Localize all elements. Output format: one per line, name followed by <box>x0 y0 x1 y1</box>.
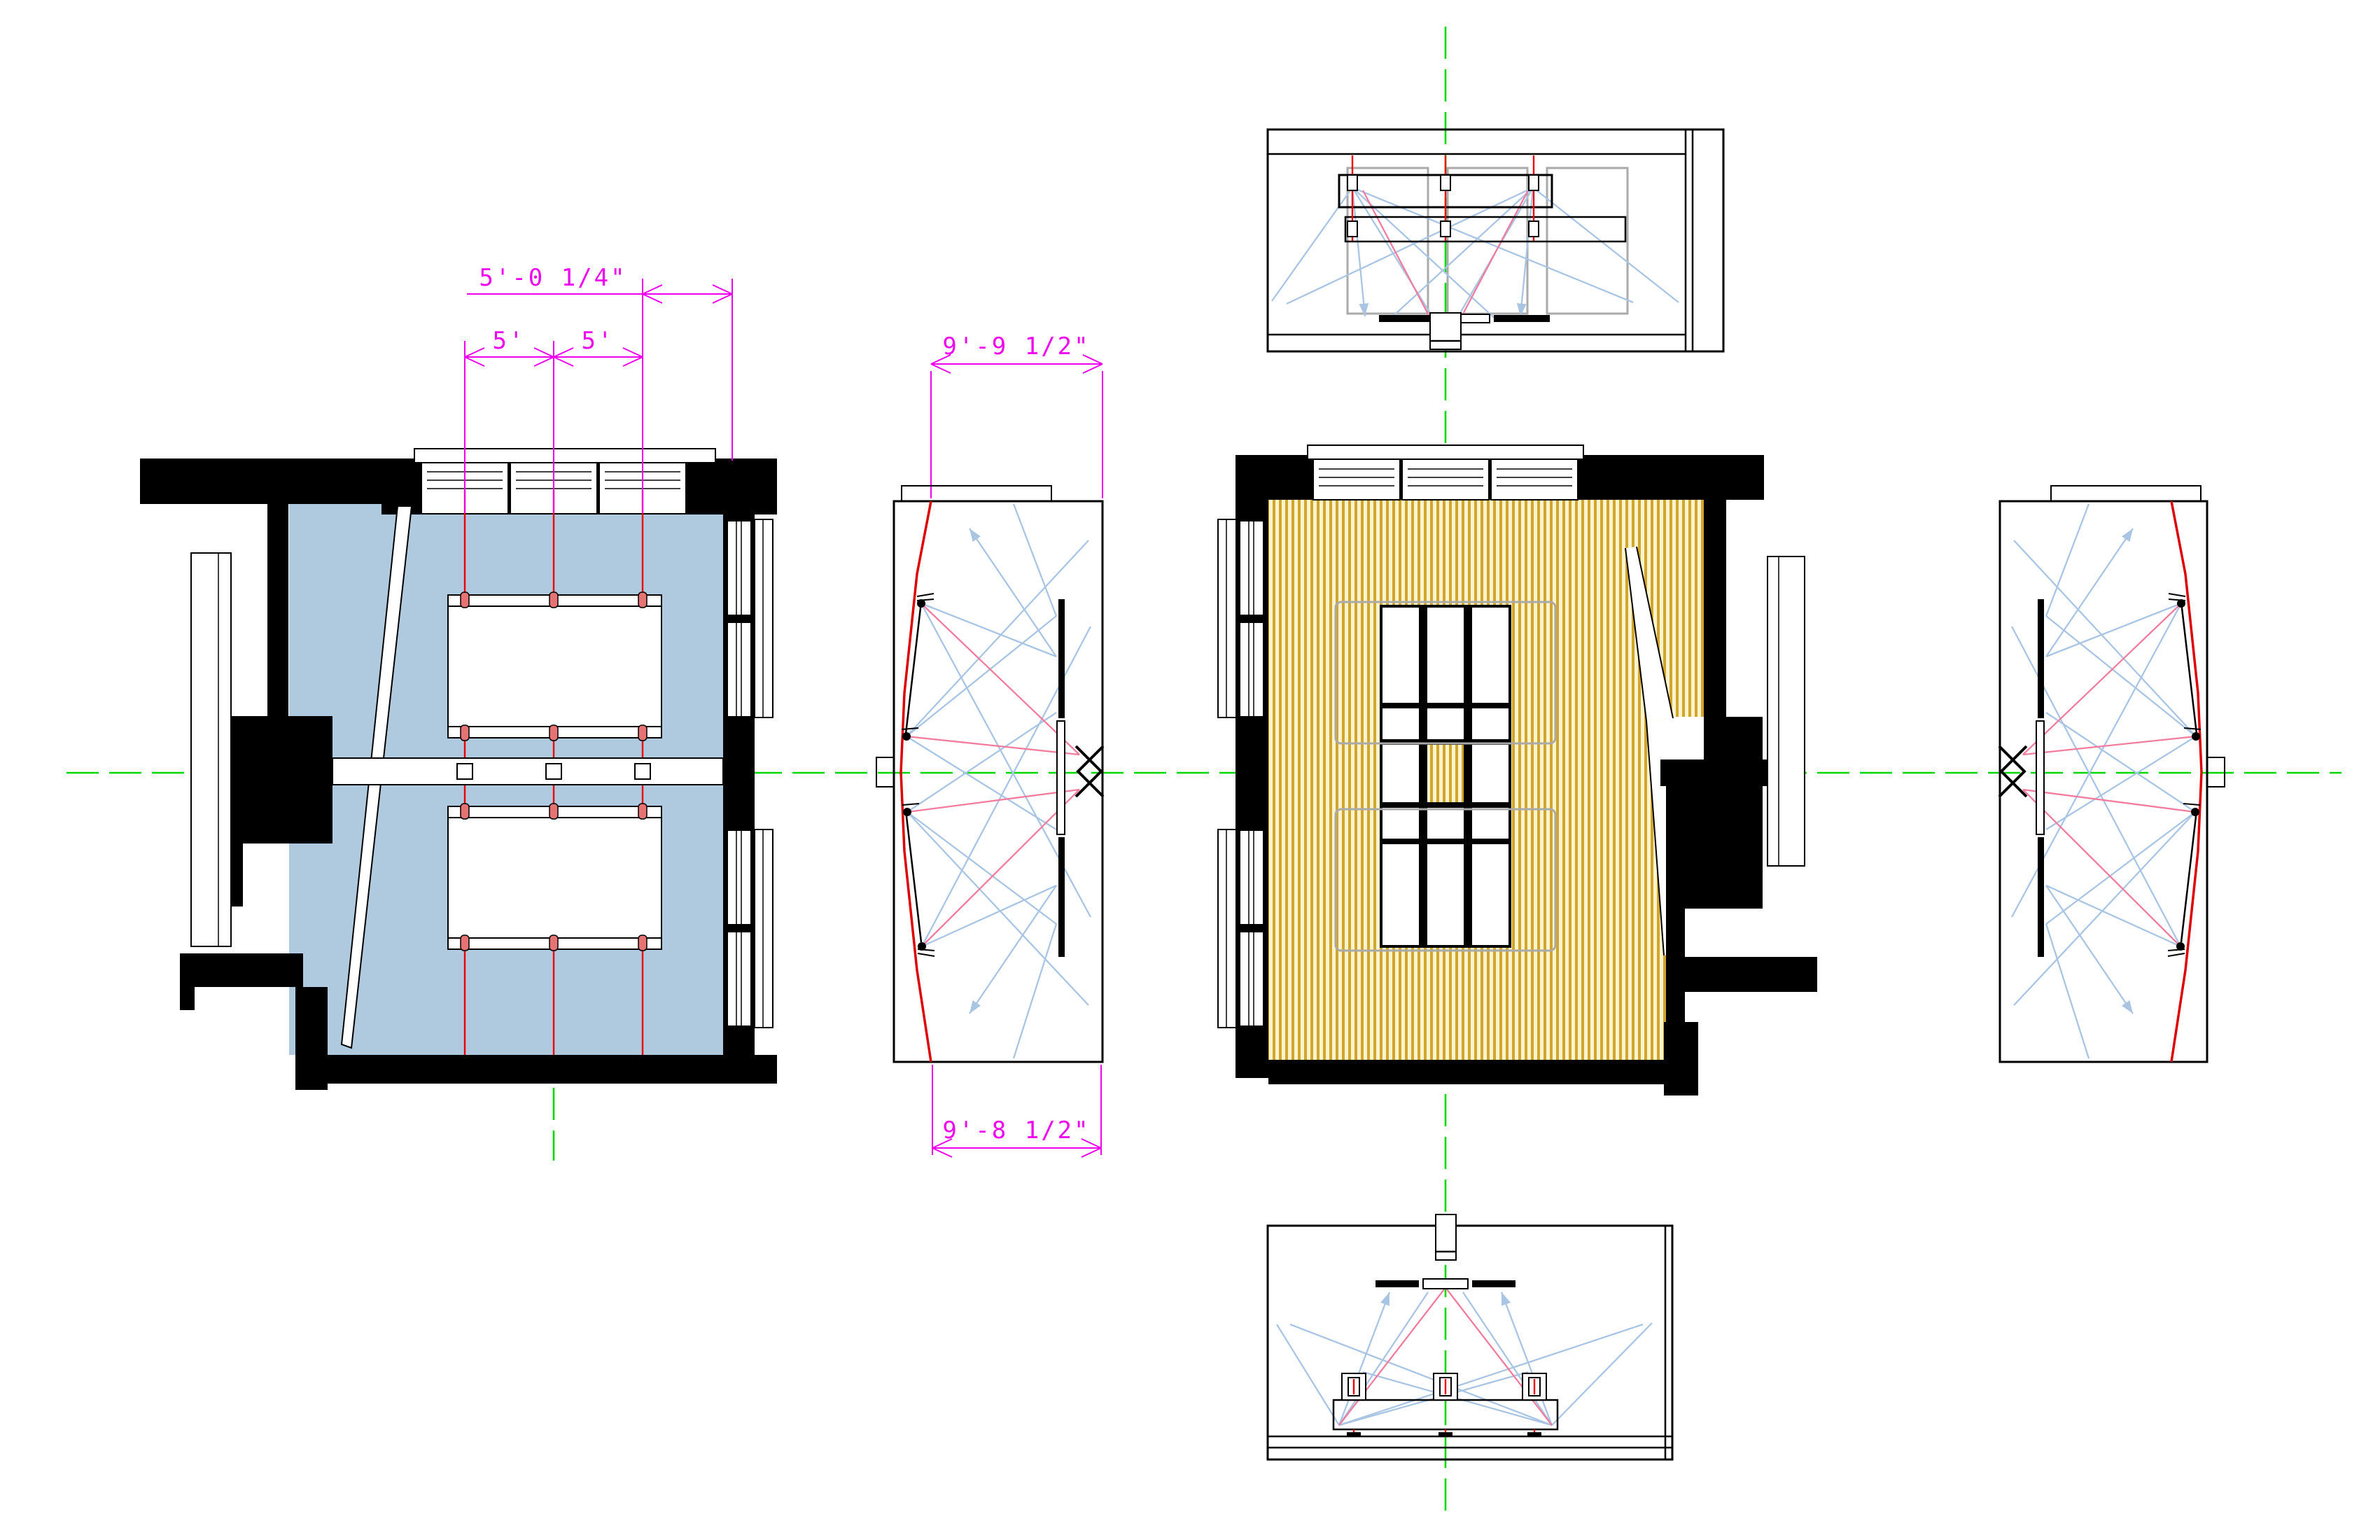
dimension-plan-overall: 5'-0 1/4" <box>467 264 732 303</box>
listener-marker <box>1999 746 2026 797</box>
room-outline <box>1268 1226 1672 1459</box>
window-bay <box>1491 459 1578 500</box>
table-gap <box>1427 745 1464 802</box>
screen <box>1057 599 1065 957</box>
window-trim <box>1218 829 1236 1028</box>
speaker <box>1528 154 1539 241</box>
table-lower <box>448 806 661 949</box>
ceiling-beam <box>332 758 723 785</box>
listener-marker <box>1076 746 1103 797</box>
room-outline <box>2000 501 2207 1062</box>
speaker-array-line <box>2171 501 2201 1062</box>
screen-bar <box>1375 1279 1515 1289</box>
screen-bar <box>1379 314 1550 323</box>
acoustic-panel-left <box>191 553 231 946</box>
dimension-section-bottom: 9'-8 1/2" <box>932 1065 1101 1157</box>
window-sill <box>1308 445 1583 459</box>
window-bays-top <box>1308 445 1583 500</box>
soffit <box>2051 486 2201 501</box>
beam-hanger <box>457 764 472 779</box>
listener-box <box>1436 1214 1456 1260</box>
soffit <box>902 486 1051 501</box>
dimension-text: 5' <box>582 327 615 355</box>
dimension-text: 9'-9 1/2" <box>942 332 1090 360</box>
dimension-text: 5'-0 1/4" <box>479 264 626 292</box>
room-outline <box>894 501 1102 1062</box>
elevation-view-top <box>1268 129 1723 351</box>
dimension-text: 9'-8 1/2" <box>942 1116 1090 1144</box>
acoustic-panel-right <box>1767 556 1805 866</box>
floor-plan-right <box>1218 445 1817 1095</box>
window-bays-top <box>414 449 715 514</box>
section-view-center <box>876 486 1103 1062</box>
speaker-mount-points <box>2168 594 2201 956</box>
screen <box>2036 599 2044 957</box>
window-trim <box>755 829 773 1028</box>
window-sill <box>414 449 715 463</box>
cad-canvas: 5'-0 1/4" 5' 5' 9'-9 1/2" <box>0 0 2380 1540</box>
section-view-right <box>1999 486 2225 1062</box>
window-trim <box>1218 519 1236 717</box>
speaker-mount-points <box>902 594 934 956</box>
listener-box <box>1430 313 1461 349</box>
floor-plan-left <box>140 449 777 1090</box>
beam-hanger <box>635 764 650 779</box>
beam-hanger <box>546 764 561 779</box>
window-bay <box>1313 459 1400 500</box>
window-bay <box>1402 459 1489 500</box>
speaker <box>1522 1373 1546 1436</box>
elevation-view-bottom <box>1268 1214 1672 1459</box>
dimension-section-top: 9'-9 1/2" <box>931 332 1102 498</box>
window-trim <box>755 519 773 717</box>
table-upper <box>448 595 661 738</box>
dimension-text: 5' <box>493 327 526 355</box>
speaker-array-line <box>901 501 931 1062</box>
